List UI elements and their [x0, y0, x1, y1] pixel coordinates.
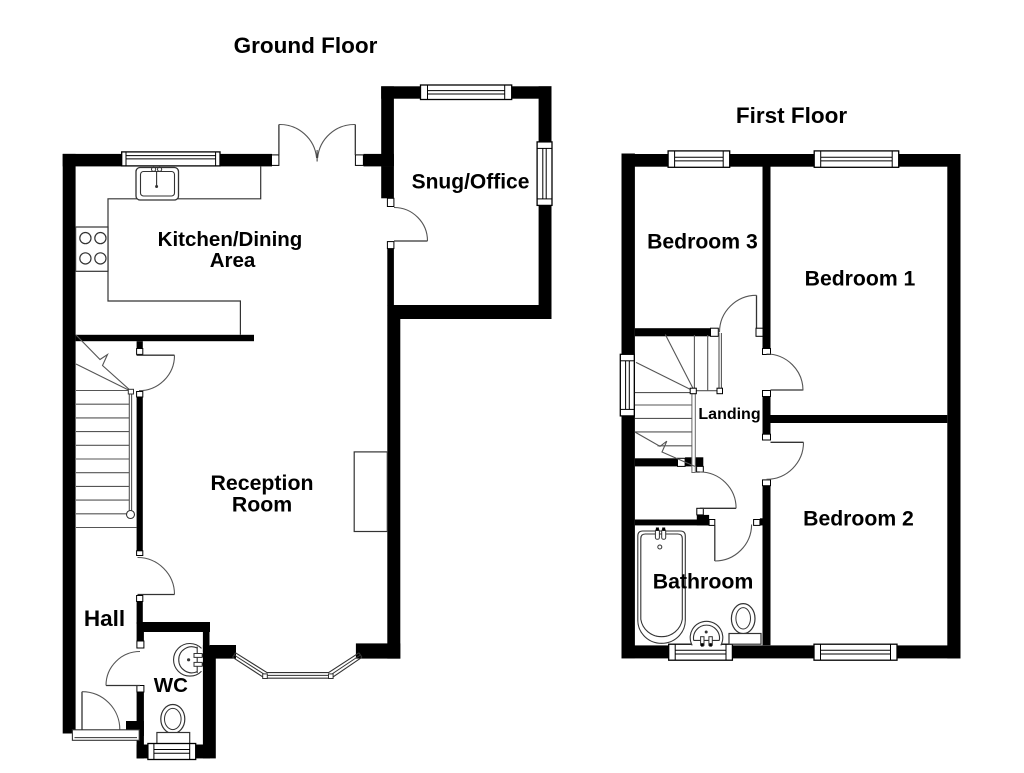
svg-text:Bedroom 3: Bedroom 3	[647, 230, 758, 253]
svg-text:Kitchen/Dining: Kitchen/Dining	[158, 228, 303, 251]
svg-text:Ground Floor: Ground Floor	[234, 33, 378, 58]
svg-text:Room: Room	[232, 492, 292, 516]
svg-text:Area: Area	[210, 249, 256, 272]
svg-text:Bedroom 1: Bedroom 1	[805, 267, 916, 290]
svg-text:WC: WC	[154, 674, 188, 697]
svg-text:Hall: Hall	[84, 606, 125, 631]
svg-text:Snug/Office: Snug/Office	[412, 171, 530, 194]
svg-text:Landing: Landing	[698, 406, 760, 423]
svg-text:Bedroom 2: Bedroom 2	[803, 507, 914, 530]
svg-text:First Floor: First Floor	[736, 103, 847, 128]
svg-text:Bathroom: Bathroom	[653, 569, 754, 593]
